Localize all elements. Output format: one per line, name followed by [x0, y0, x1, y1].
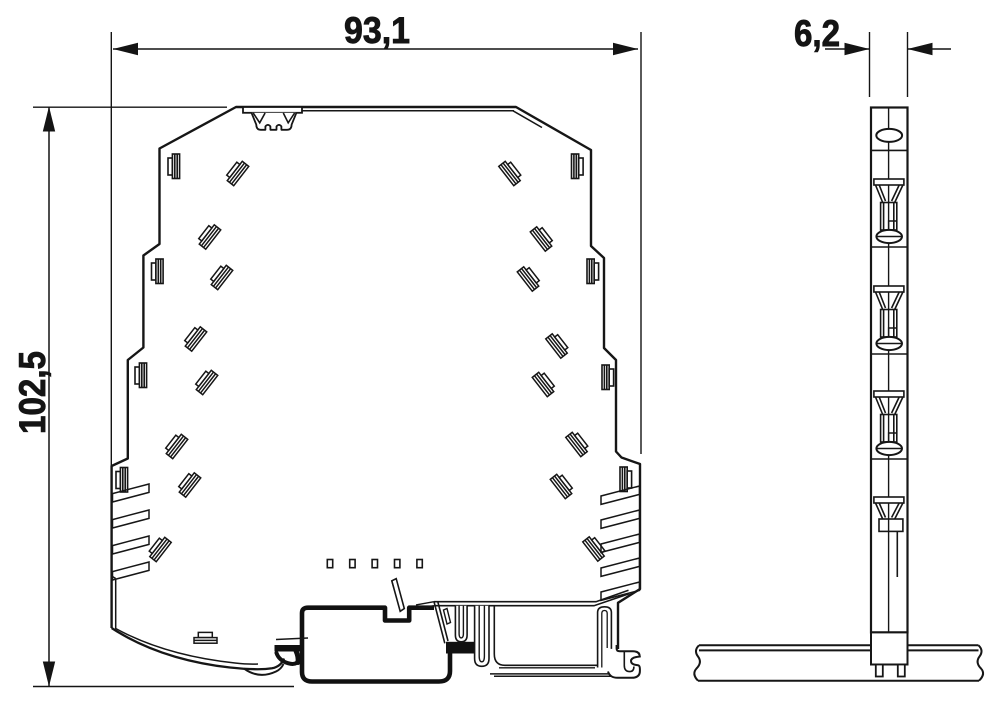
svg-text:6,2: 6,2 [794, 12, 840, 54]
svg-text:93,1: 93,1 [344, 9, 410, 51]
svg-text:102,5: 102,5 [11, 351, 53, 434]
